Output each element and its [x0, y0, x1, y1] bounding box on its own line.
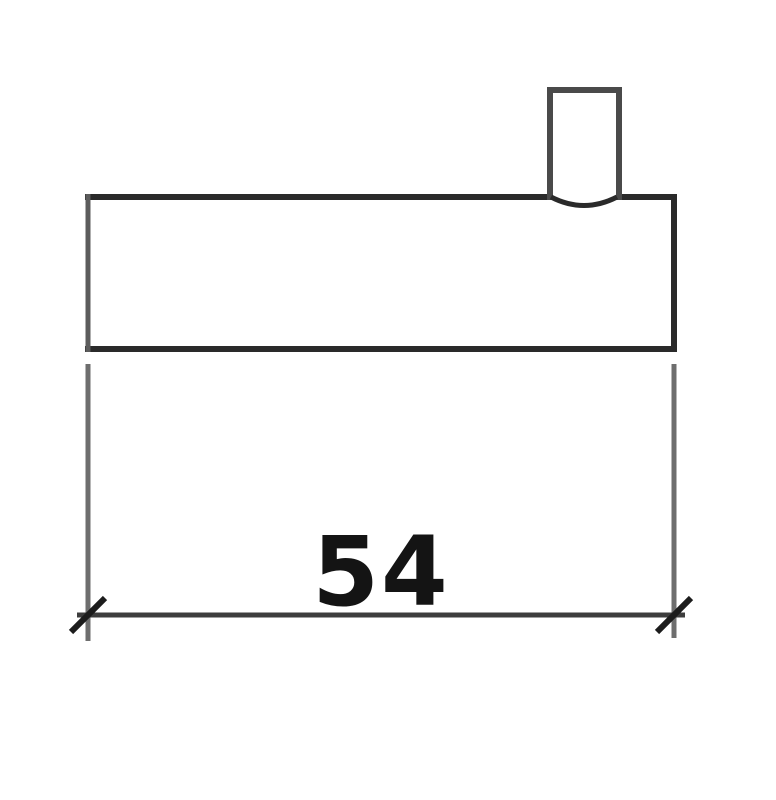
stub-bottom-arc [551, 197, 617, 206]
dimension-drawing [0, 0, 776, 800]
drawing-canvas: 54 [0, 0, 776, 800]
dimension-value-label: 54 [312, 524, 450, 620]
stub-outline [550, 90, 619, 200]
